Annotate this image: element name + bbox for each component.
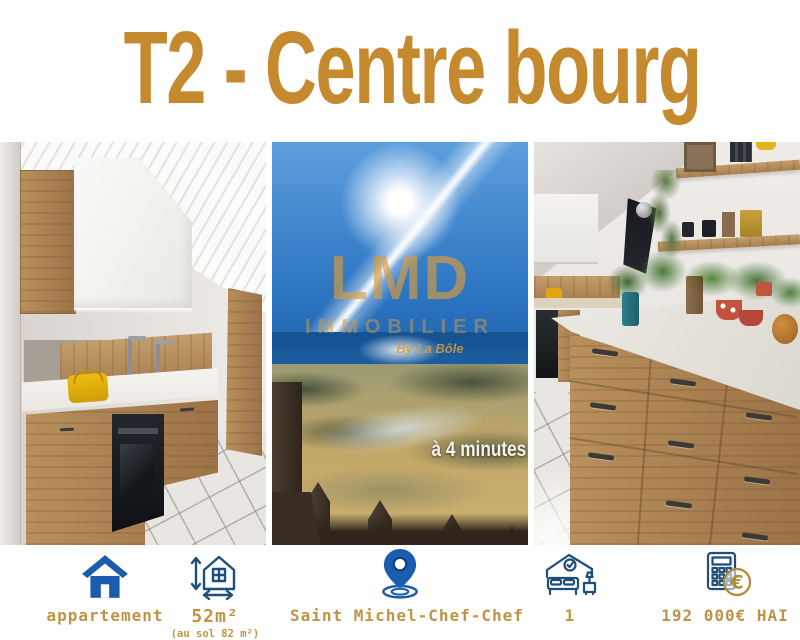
books [730, 142, 752, 162]
oven [112, 414, 164, 532]
house-dimensions-icon [140, 548, 290, 600]
footer-item-surface: 52m² (au sol 82 m²) [140, 548, 290, 636]
footer-item-location: Saint Michel-Chef-Chef [290, 548, 510, 636]
yellow-bowl [756, 142, 776, 150]
location-label: Saint Michel-Chef-Chef [290, 606, 510, 625]
bedrooms-count: 1 [495, 606, 645, 625]
svg-text:€: € [729, 572, 743, 594]
left-wall [0, 142, 21, 545]
white-upper-cabinets [534, 194, 598, 264]
surface-sublabel: (au sol 82 m²) [140, 628, 290, 640]
red-pot [756, 282, 772, 296]
photo-frame [722, 212, 735, 237]
agency-watermark: LMD IMMOBILIER By La Bôle [272, 250, 528, 356]
real-estate-flyer: T2 - Centre bourg [0, 0, 800, 640]
red-pot [739, 310, 763, 326]
amber-vase [772, 314, 798, 344]
footer-item-price: € 192 000€ HAI [645, 548, 800, 636]
yellow-handbag [67, 373, 109, 404]
watermark-immobilier: IMMOBILIER [272, 316, 528, 339]
photo-frame [684, 142, 716, 172]
photo-beach: LMD IMMOBILIER By La Bôle à 4 minutes de… [272, 142, 528, 545]
wood-door [226, 288, 262, 456]
fence-row [272, 492, 528, 545]
listing-title: T2 - Centre bourg [124, 14, 701, 122]
watermark-lmd: LMD [272, 250, 528, 308]
page-title: T2 - Centre bourg [0, 14, 800, 134]
wood-cabinet [20, 170, 76, 314]
calculator-euro-icon: € [645, 548, 800, 600]
teal-vase [622, 292, 639, 326]
faucet [128, 338, 132, 378]
mug [702, 220, 716, 237]
location-pin-icon [290, 548, 510, 600]
under-cabinet-light [74, 308, 192, 313]
bedroom-icon [495, 548, 645, 600]
decor-tin [740, 210, 762, 237]
surface-label: 52m² [140, 606, 290, 627]
photo-kitchen [0, 142, 266, 545]
watermark-byline: By La Bôle [272, 341, 528, 356]
footer-item-bedrooms: 1 [495, 548, 645, 636]
photo-kitchen-island [534, 142, 800, 545]
glass-jar [686, 276, 703, 314]
price-label: 192 000€ HAI [645, 606, 800, 625]
